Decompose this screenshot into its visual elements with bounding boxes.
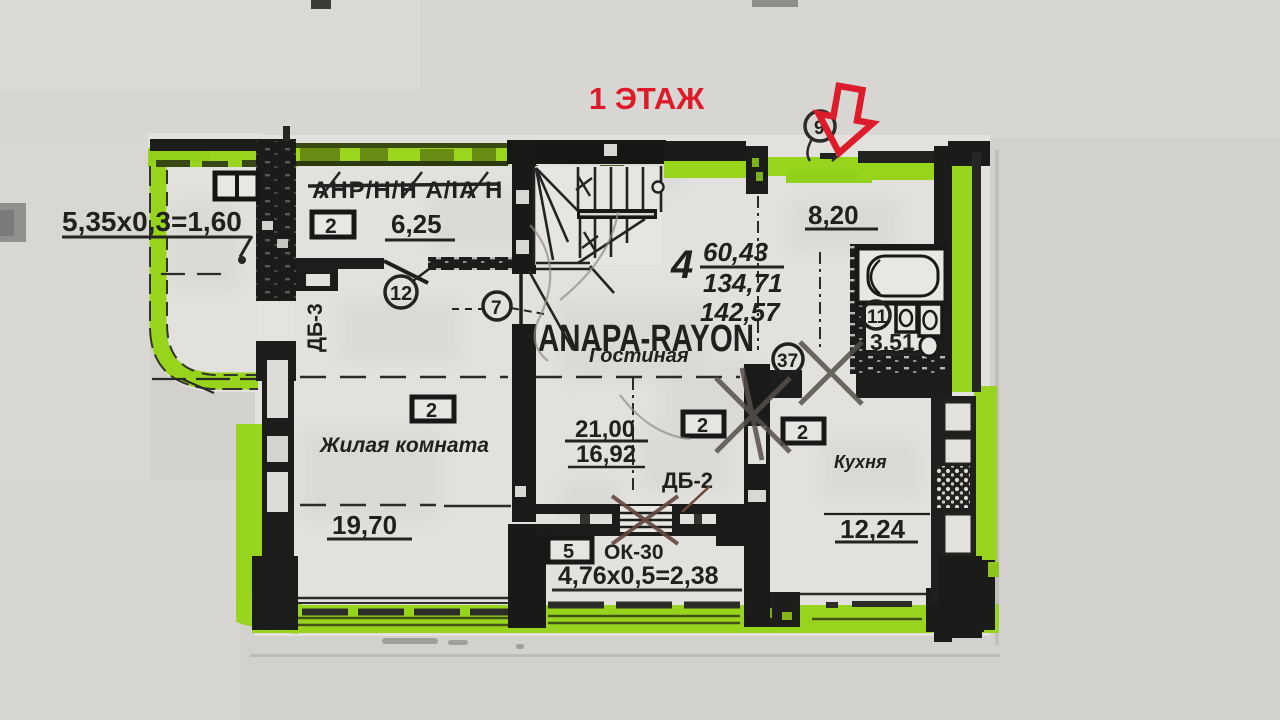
svg-text:7: 7: [491, 298, 502, 319]
svg-text:ДБ-3: ДБ-3: [304, 303, 327, 352]
svg-text:8,20: 8,20: [808, 200, 859, 230]
svg-text:5: 5: [563, 541, 574, 563]
svg-text:37: 37: [777, 351, 798, 372]
svg-text:2: 2: [325, 215, 337, 238]
svg-text:Жилая комната: Жилая комната: [319, 434, 489, 457]
svg-text:6,25: 6,25: [391, 209, 442, 239]
svg-text:134,71: 134,71: [703, 268, 783, 298]
svg-text:16,92: 16,92: [576, 441, 636, 468]
svg-text:2: 2: [426, 400, 437, 422]
svg-text:12,24: 12,24: [840, 514, 906, 544]
svg-text:60,43: 60,43: [703, 237, 769, 267]
svg-text:4: 4: [670, 243, 693, 287]
svg-text:19,70: 19,70: [332, 510, 397, 540]
svg-text:3,51: 3,51: [870, 329, 915, 355]
svg-text:11: 11: [867, 307, 888, 328]
svg-text:Кухня: Кухня: [834, 452, 887, 472]
svg-text:Гостиная: Гостиная: [589, 345, 689, 367]
svg-text:2: 2: [797, 422, 808, 444]
svg-text:1 ЭТАЖ: 1 ЭТАЖ: [589, 81, 705, 116]
svg-text:21,00: 21,00: [575, 416, 635, 443]
svg-text:4,76х0,5=2,38: 4,76х0,5=2,38: [558, 562, 719, 590]
svg-text:5,35х0,3=1,60: 5,35х0,3=1,60: [62, 206, 242, 237]
svg-text:2: 2: [697, 415, 708, 437]
svg-text:12: 12: [390, 283, 412, 305]
